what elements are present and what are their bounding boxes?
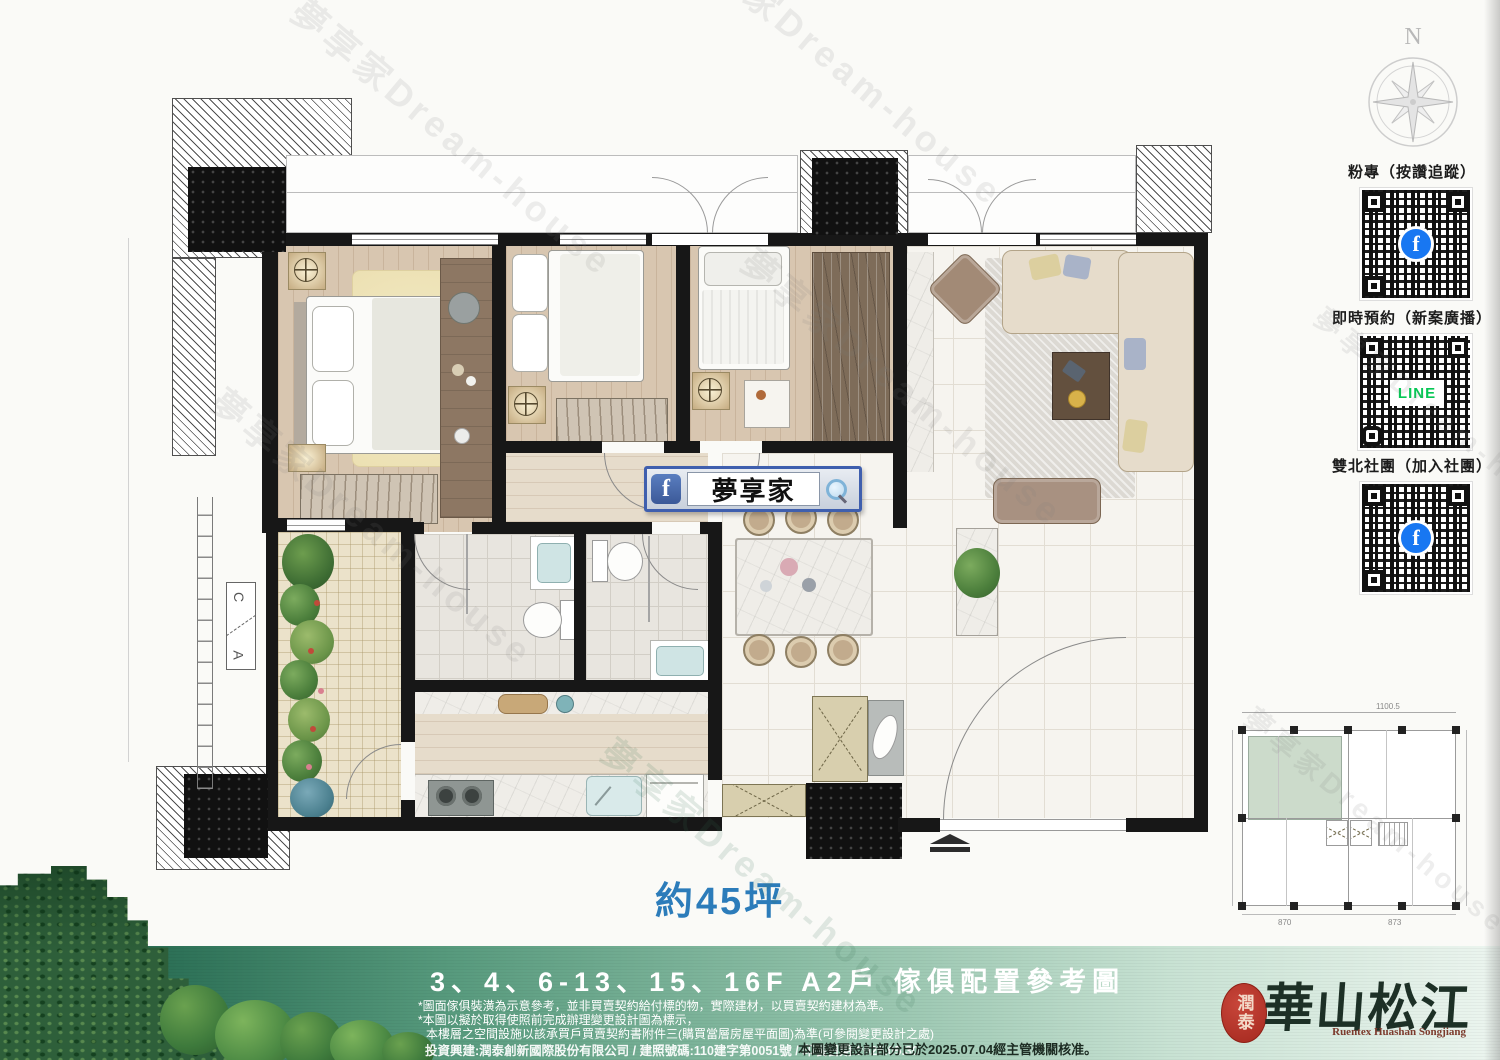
side-table <box>744 380 790 428</box>
cutting-board <box>498 694 548 714</box>
keyplan-column <box>1452 902 1460 910</box>
qr-code-group: f <box>1360 482 1472 594</box>
approval-line: 本圖變更設計部分已於2025.07.04經主管機關核准。 <box>798 1039 1097 1058</box>
sofa-pillow <box>1062 254 1091 280</box>
wardrobe <box>812 252 890 444</box>
wall <box>266 817 722 831</box>
ceiling-light-symbol <box>698 378 722 402</box>
plant <box>282 740 322 782</box>
qr-finder-icon <box>1364 192 1384 212</box>
wall <box>262 233 278 533</box>
compass-north-label: N <box>1398 24 1428 51</box>
dimension-label: 1100.5 <box>1376 702 1400 711</box>
wall <box>690 441 700 453</box>
hatch-block <box>172 258 216 456</box>
ceiling-light-symbol <box>294 258 318 282</box>
highlighted-unit-a2 <box>1248 736 1342 820</box>
kitchen-floor <box>415 714 708 774</box>
washer-lid-line <box>650 782 698 784</box>
search-overlay: f 夢享家 <box>644 466 862 512</box>
dimension-line <box>1232 730 1233 906</box>
key-plan: 1100.5 870 873 <box>1226 700 1472 934</box>
page-edge-shadow <box>1484 0 1500 1060</box>
wardrobe <box>300 474 438 524</box>
hatch-block <box>1136 145 1212 233</box>
keyplan-column <box>1238 814 1246 822</box>
section-marker: C A <box>226 582 256 670</box>
sink-basin <box>656 646 704 676</box>
keyplan-column <box>1344 902 1352 910</box>
wall <box>762 441 907 453</box>
potted-plant <box>954 548 1000 598</box>
keyplan-column <box>1344 726 1352 734</box>
dimension-line <box>1466 730 1467 906</box>
brand-seal: 潤泰 <box>1221 983 1267 1043</box>
keyplan-column <box>1398 726 1406 734</box>
line-icon: LINE <box>1390 380 1444 406</box>
keyplan-wall <box>1412 818 1413 906</box>
pillow <box>512 314 548 372</box>
wall <box>472 522 652 534</box>
area-label: 約45坪 <box>560 870 880 925</box>
plant <box>290 778 334 818</box>
elevator <box>1350 820 1372 846</box>
decor-item <box>454 428 470 444</box>
bench <box>993 478 1101 524</box>
plant <box>288 698 330 742</box>
section-marker-line <box>226 615 256 636</box>
dimension-label: 873 <box>1388 918 1401 927</box>
dining-chair <box>827 634 859 666</box>
qr-code-booking: LINE <box>1358 334 1472 450</box>
brand-romanized: Ruentex Huashan Songjiang <box>1270 1026 1466 1038</box>
toilet-tank <box>592 540 608 582</box>
bed-duvet <box>560 254 640 376</box>
facebook-icon: f <box>1398 520 1434 556</box>
table-decor <box>780 558 798 576</box>
door-opening <box>940 819 1126 831</box>
qr-section-label-fans: 粉專（按讚追蹤） <box>1332 161 1492 182</box>
dining-chair <box>743 634 775 666</box>
qr-finder-icon <box>1448 486 1468 506</box>
column <box>188 167 286 252</box>
sofa-pillow <box>1122 419 1148 454</box>
keyplan-column <box>1398 902 1406 910</box>
brand-seal-text: 潤泰 <box>1232 994 1257 1032</box>
keyplan-column <box>1290 902 1298 910</box>
keyplan-column <box>1238 726 1246 734</box>
window <box>287 519 345 531</box>
master-bed-headboard <box>294 302 306 452</box>
table-decor <box>760 580 772 592</box>
pillow <box>312 306 354 372</box>
toilet-bowl <box>523 602 562 638</box>
facebook-icon: f <box>651 474 681 504</box>
qr-finder-icon <box>1364 276 1384 296</box>
coffee-table <box>1052 352 1110 420</box>
floor-title: 3、4、6-13、15、16F A2戶 傢俱配置參考圖 <box>430 960 1125 999</box>
stairs <box>1378 822 1408 846</box>
kitchen-sink <box>586 776 642 816</box>
qr-finder-icon <box>1448 192 1468 212</box>
section-marker-bottom-label: A <box>231 650 247 659</box>
burner <box>436 786 456 806</box>
dimension-label: 870 <box>1278 918 1291 927</box>
qr-section-label-group: 雙北社團（加入社團） <box>1332 455 1492 476</box>
decor-item <box>452 364 464 376</box>
keyplan-wall <box>1386 730 1387 818</box>
pillow <box>312 380 354 446</box>
flyer-page: C A f 夢享家 約45坪 N 粉專（按讚追蹤） f 即時預 <box>0 0 1500 1060</box>
wall <box>893 246 907 528</box>
window <box>352 234 498 245</box>
washer <box>646 774 704 818</box>
wall <box>708 522 722 692</box>
decor-item <box>466 376 476 386</box>
magnifier-handle <box>838 494 847 503</box>
compass-rose-icon <box>1366 50 1460 154</box>
wall <box>574 534 586 680</box>
wardrobe <box>556 398 668 442</box>
qr-finder-icon <box>1362 338 1382 358</box>
tray <box>1068 390 1086 408</box>
window <box>1040 234 1136 245</box>
flower <box>308 648 314 654</box>
keyplan-column <box>1452 726 1460 734</box>
sofa-pillow <box>1124 338 1146 370</box>
wall <box>401 532 415 742</box>
dimension-line <box>1242 712 1456 713</box>
section-marker-top-label: C <box>231 592 247 602</box>
qr-finder-icon <box>1448 338 1468 358</box>
burner <box>462 786 482 806</box>
plant <box>290 620 334 664</box>
keyplan-wall <box>1278 736 1279 818</box>
qr-finder-icon <box>1362 426 1382 446</box>
door-opening <box>928 234 1036 245</box>
balcony-railing-line <box>286 192 798 193</box>
wall <box>401 800 415 818</box>
qr-section-label-booking: 即時預約（新案廣播） <box>1332 307 1492 328</box>
facebook-glyph: f <box>1412 525 1419 551</box>
door-opening <box>652 234 768 245</box>
entry-arrow-icon <box>930 834 970 844</box>
flower <box>314 600 320 606</box>
pillow <box>512 254 548 312</box>
column <box>812 158 898 235</box>
plant <box>280 660 318 700</box>
shoe-cabinet <box>722 784 806 817</box>
nightstand <box>288 444 326 472</box>
keyplan-column <box>1290 726 1298 734</box>
wall <box>498 441 602 453</box>
elevator <box>1326 820 1348 846</box>
pillow <box>704 252 782 286</box>
neighbour-wall-symbol <box>197 497 213 789</box>
facebook-icon: f <box>1398 226 1434 262</box>
wall <box>1194 233 1208 832</box>
entry-arrow-bar <box>930 847 970 852</box>
plant <box>282 534 334 590</box>
flower <box>310 726 316 732</box>
pot <box>556 695 574 713</box>
shoe-cabinet <box>812 696 868 782</box>
qr-finder-icon <box>1364 486 1384 506</box>
sink-basin <box>537 543 571 583</box>
property-line <box>128 238 129 762</box>
window <box>560 234 646 245</box>
keyplan-column <box>1238 902 1246 910</box>
stool <box>448 292 480 324</box>
qr-finder-icon <box>1364 570 1384 590</box>
wall <box>407 680 722 692</box>
toilet-bowl <box>607 542 643 581</box>
keyplan-wall <box>1242 818 1456 819</box>
wall <box>898 818 940 832</box>
flower <box>306 764 312 770</box>
qr-code-fans: f <box>1360 188 1472 300</box>
flower <box>318 688 324 694</box>
decor-item <box>756 390 766 400</box>
ceiling-light-symbol <box>514 392 538 416</box>
table-decor <box>802 578 816 592</box>
dining-chair <box>785 636 817 668</box>
wall <box>676 246 690 453</box>
search-overlay-field: 夢享家 <box>687 472 820 506</box>
wall <box>664 441 688 453</box>
line-label: LINE <box>1398 385 1436 402</box>
keyplan-wall <box>1286 818 1287 906</box>
search-overlay-text: 夢享家 <box>711 471 795 508</box>
facebook-glyph: f <box>662 476 670 503</box>
wall <box>492 246 506 533</box>
bed-duvet <box>702 290 784 364</box>
facebook-glyph: f <box>1412 231 1419 257</box>
dimension-line <box>1242 914 1456 915</box>
entry-mat-column <box>806 783 902 859</box>
magnifier-icon <box>826 479 847 500</box>
keyplan-column <box>1452 814 1460 822</box>
wall <box>708 692 722 780</box>
